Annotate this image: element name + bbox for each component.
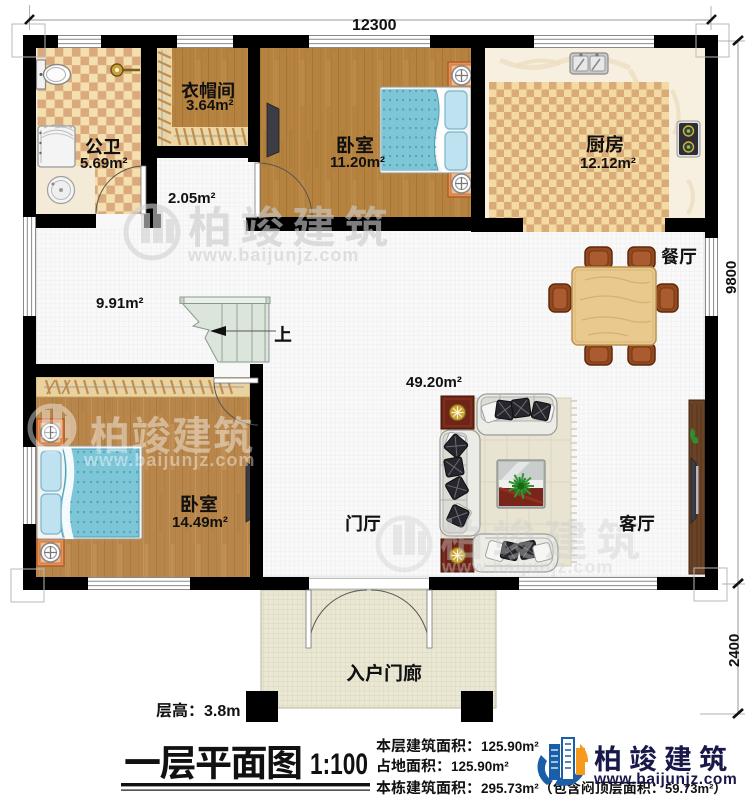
svg-text:3.64m²: 3.64m² (186, 97, 234, 114)
svg-text:2.05m²: 2.05m² (168, 190, 216, 207)
svg-text:2400: 2400 (726, 634, 743, 667)
svg-text:www.baijunjz.com: www.baijunjz.com (187, 245, 359, 265)
svg-text:295.73m²: 295.73m² (481, 781, 539, 796)
svg-text:www.baijunjz.com: www.baijunjz.com (83, 450, 255, 470)
svg-text:9.91m²: 9.91m² (96, 295, 144, 312)
svg-text:12300: 12300 (352, 17, 397, 34)
svg-text:125.90m²: 125.90m² (451, 759, 509, 774)
svg-text:14.49m²: 14.49m² (172, 514, 228, 531)
svg-text:9800: 9800 (723, 261, 740, 294)
svg-text:11.20m²: 11.20m² (330, 154, 385, 171)
svg-text:49.20m²: 49.20m² (406, 374, 462, 391)
svg-text:1:100: 1:100 (310, 748, 368, 781)
svg-text:125.90m²: 125.90m² (481, 739, 539, 754)
svg-text:12.12m²: 12.12m² (580, 155, 636, 172)
svg-text:5.69m²: 5.69m² (80, 155, 128, 172)
svg-text:www.baijunjz.com: www.baijunjz.com (593, 771, 737, 788)
svg-text:3.8m: 3.8m (204, 703, 240, 720)
svg-text:www.baijunjz.com: www.baijunjz.com (441, 557, 613, 577)
